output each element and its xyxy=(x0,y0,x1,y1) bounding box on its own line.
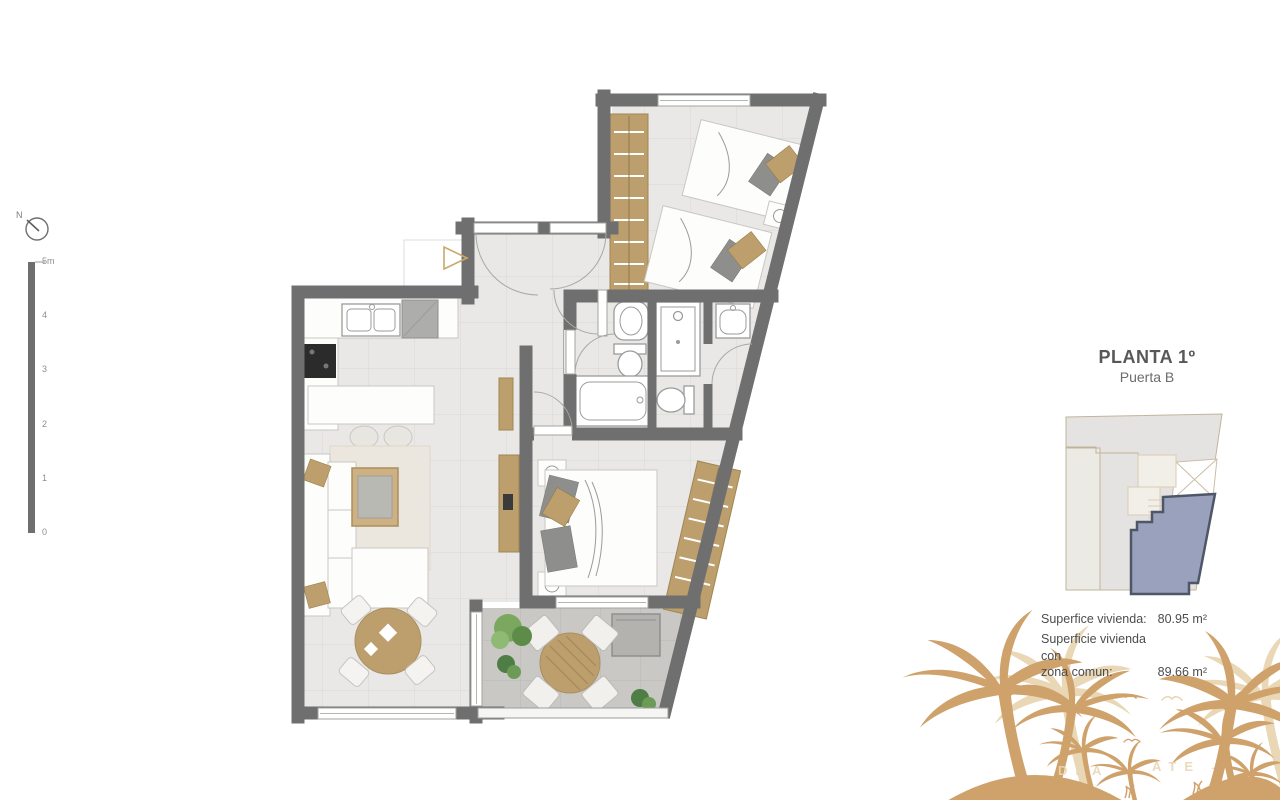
area-label: Superfice vivienda: xyxy=(1041,611,1147,627)
shower xyxy=(656,302,700,376)
watermark-fragment: DEA xyxy=(1058,763,1109,778)
scale-tick-label: 5m xyxy=(42,256,55,266)
area-value: 89.66 m² xyxy=(1158,664,1207,680)
key-plan xyxy=(1066,414,1222,594)
grass-tuft xyxy=(1125,781,1202,798)
door-leaf xyxy=(598,290,607,336)
scale-tick-label: 3 xyxy=(42,364,47,374)
washbasin xyxy=(614,302,648,340)
bar-stool xyxy=(350,426,378,448)
bar-stool xyxy=(384,426,412,448)
tv xyxy=(503,494,513,510)
sand-mound xyxy=(945,775,1125,800)
north-compass-icon xyxy=(26,218,48,240)
area-label: Superficie vivienda con zona comun: xyxy=(1041,631,1158,680)
north-label: N xyxy=(16,210,23,220)
hall-console xyxy=(499,378,513,430)
area-row: Superficie vivienda con zona comun: 89.6… xyxy=(1041,631,1207,680)
bathroom-2 xyxy=(656,302,700,414)
toilet xyxy=(657,386,694,414)
area-summary: Superfice vivienda: 80.95 m² Superficie … xyxy=(1041,611,1207,684)
terrace-railing xyxy=(478,708,668,718)
kitchen-island xyxy=(308,386,434,424)
door-leaf xyxy=(550,223,606,233)
scale-tick-label: 4 xyxy=(42,310,47,320)
scale-tick-label: 0 xyxy=(42,527,47,537)
floorplan-brochure-page: N 5m 4 3 2 1 0 PLANTA 1º Puerta B Superf… xyxy=(0,0,1280,800)
bathtub xyxy=(574,376,652,426)
cooktop xyxy=(304,344,336,378)
floor-plan xyxy=(298,95,820,719)
area-value: 80.95 m² xyxy=(1158,611,1207,627)
laundry-basin xyxy=(716,304,750,338)
scale-tick-label: 2 xyxy=(42,419,47,429)
scale-tick-label: 1 xyxy=(42,473,47,483)
wardrobe xyxy=(610,114,648,296)
door-leaf xyxy=(534,426,572,435)
area-row: Superfice vivienda: 80.95 m² xyxy=(1041,611,1207,627)
watermark-fragment: ATE xyxy=(1152,759,1201,774)
door-leaf xyxy=(474,223,538,233)
page-subtitle: Puerta B xyxy=(1063,369,1231,385)
page-title: PLANTA 1º xyxy=(1063,347,1231,368)
scale-bar xyxy=(28,262,45,533)
door-leaf xyxy=(566,330,575,374)
